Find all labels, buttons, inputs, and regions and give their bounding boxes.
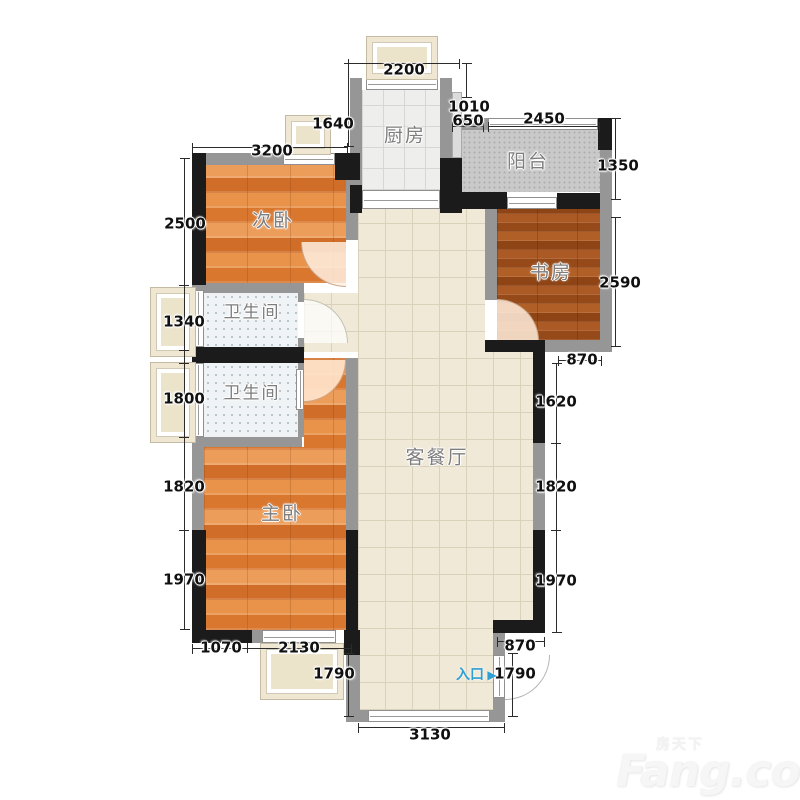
black-wall-bedroom2-top-right — [335, 153, 360, 180]
dim-tick — [179, 437, 189, 438]
room-label-bathroom2: 卫生间 — [224, 386, 281, 403]
room-label-kitchen: 厨房 — [384, 127, 426, 146]
dim-label-1640: 1640 — [312, 117, 354, 132]
dim-label-650: 650 — [452, 114, 483, 129]
floorplan-canvas: 2200 1640 3200 1010 650 2450 1350 2590 8… — [0, 0, 800, 800]
dim-label-1800: 1800 — [163, 392, 205, 407]
black-wall-right-top-corner — [598, 118, 612, 150]
wall-right-outer — [600, 148, 612, 352]
dim-tick — [179, 350, 189, 351]
entrance-label: 入口 — [456, 668, 484, 682]
dim-label-3200: 3200 — [251, 144, 293, 159]
window-living-bottom — [368, 710, 490, 722]
dim-label-870-bottom: 870 — [504, 639, 535, 654]
black-wall-bath-divider — [192, 347, 304, 363]
dim-label-1070: 1070 — [200, 641, 242, 656]
black-wall-master-right — [346, 530, 358, 630]
dim-tick — [179, 285, 189, 286]
dim-label-1970-right: 1970 — [535, 574, 577, 589]
wall-bedroom2-bath1-divider — [192, 283, 304, 293]
dim-label-1970-left: 1970 — [163, 573, 205, 588]
wall-bath2-right-stub-bottom — [298, 410, 304, 437]
dim-label-1790-left: 1790 — [313, 667, 355, 682]
dim-label-2450: 2450 — [523, 112, 565, 127]
window-balcony-study — [507, 197, 557, 209]
dim-tick — [551, 530, 561, 531]
wall-study-left — [485, 209, 497, 300]
dimline-balcony-connector — [466, 63, 467, 98]
watermark-fang-logo: Fang.com — [616, 750, 800, 794]
dim-label-1350: 1350 — [597, 159, 639, 174]
wall-bath2-master-divider — [192, 437, 302, 447]
dim-tick — [179, 530, 189, 531]
dimline-bottom-left-column — [348, 653, 349, 717]
room-label-living: 客餐厅 — [405, 449, 468, 468]
dim-label-2590: 2590 — [599, 276, 641, 291]
dim-label-1820-left: 1820 — [163, 480, 205, 495]
entrance-arrow-icon: ▶ — [487, 669, 496, 681]
black-wall-master-bottom-right — [344, 630, 360, 655]
black-wall-kitchen-balcony — [440, 158, 462, 213]
wall-bath1-right-stub-bottom — [298, 338, 304, 347]
dimline-kitchen-left — [348, 63, 349, 147]
room-label-master: 主卧 — [261, 505, 303, 524]
room-label-study: 书房 — [530, 264, 572, 283]
dim-tick — [179, 363, 189, 364]
dim-label-1790-right: 1790 — [494, 667, 536, 682]
dim-label-870-right: 870 — [566, 353, 597, 368]
wall-bath1-right-stub-top — [298, 293, 304, 302]
room-label-bathroom1: 卫生间 — [224, 305, 281, 322]
dimline-entrance — [512, 653, 513, 717]
wall-kitchen-right — [440, 78, 452, 158]
wall-living-bottom-stub-right — [488, 710, 505, 722]
dim-label-3130: 3130 — [409, 728, 451, 743]
black-wall-entrance-step — [493, 620, 545, 633]
door-panel-bathroom2 — [296, 369, 304, 410]
dim-label-1820-right: 1820 — [535, 480, 577, 495]
kitchen-sliding-door — [362, 190, 440, 209]
wall-master-right-upper — [346, 358, 358, 530]
black-wall-study-bottom — [485, 340, 545, 352]
dim-label-1620: 1620 — [535, 395, 577, 410]
wall-master-bottom-mid — [252, 630, 262, 643]
dim-label-2130: 2130 — [278, 641, 320, 656]
black-wall-kitchen-left-bottom — [350, 185, 362, 213]
dim-label-1340: 1340 — [163, 315, 205, 330]
dim-label-2200: 2200 — [383, 63, 425, 78]
dim-tick — [551, 443, 561, 444]
room-label-balcony: 阳台 — [507, 153, 549, 172]
room-label-bedroom2: 次卧 — [252, 212, 294, 231]
wall-entrance-top — [493, 633, 505, 655]
black-wall-balcony-bottom-right — [557, 193, 600, 209]
black-wall-balcony-bottom-left — [462, 192, 507, 209]
dim-tick — [247, 643, 248, 653]
dim-label-2500: 2500 — [164, 217, 206, 232]
